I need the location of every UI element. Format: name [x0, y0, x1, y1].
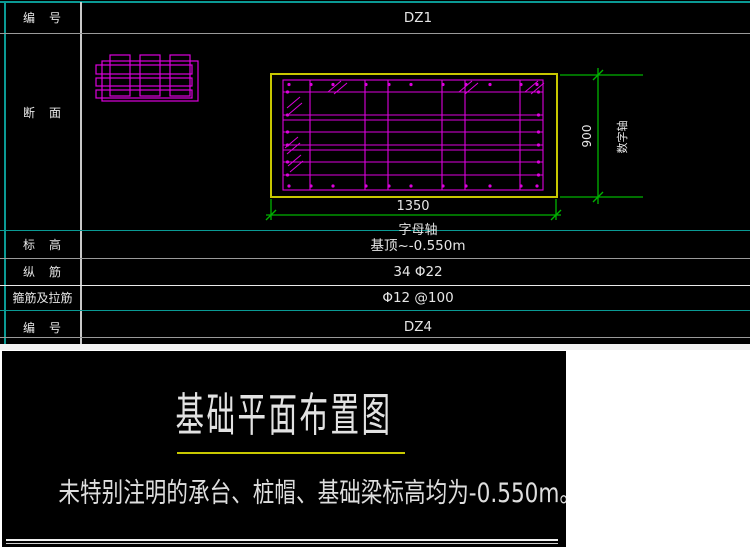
- axis-right-label: 数字轴: [615, 121, 629, 154]
- title-underline: [177, 452, 405, 454]
- stirrup-hooks: [285, 81, 544, 172]
- schedule-table: 编 号 断 面 标 高 纵 筋 箍筋及拉筋 编 号 DZ1 基顶~-0.550m…: [0, 0, 750, 344]
- dim-height-text: 900: [580, 125, 594, 148]
- title-block-rule-thin: [6, 543, 558, 544]
- rebar-dots: [286, 83, 540, 188]
- cad-viewport: 编 号 断 面 标 高 纵 筋 箍筋及拉筋 编 号 DZ1 基顶~-0.550m…: [0, 0, 750, 547]
- drawing-title: 基础平面布置图: [109, 379, 459, 445]
- dim-width-text: 1350: [396, 199, 429, 214]
- rebar-cage: [283, 80, 543, 190]
- pile-cap-sketch: [96, 55, 198, 101]
- footer-region: 基础平面布置图 未特别注明的承台、桩帽、基础梁标高均为-0.550m。: [0, 350, 750, 547]
- title-block-rule: [6, 539, 558, 541]
- title-block: 基础平面布置图 未特别注明的承台、桩帽、基础梁标高均为-0.550m。: [2, 351, 566, 547]
- section-drawing: 1350 字母轴 900 数字轴: [0, 0, 750, 344]
- axis-bottom-label: 字母轴: [398, 223, 437, 238]
- elevation-note: 未特别注明的承台、桩帽、基础梁标高均为-0.550m。: [58, 471, 509, 510]
